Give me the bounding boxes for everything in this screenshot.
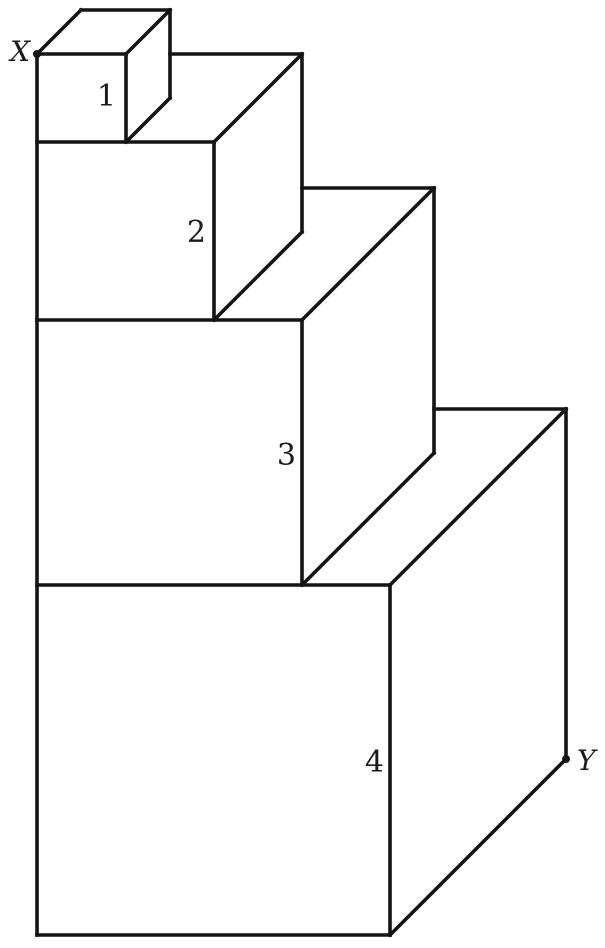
diagram-canvas: XY1234 [0,0,605,948]
cube1-top-left-depth-edge [37,10,81,54]
cube4-bottom-right-depth-edge [390,759,566,935]
label-cube-1: 1 [97,79,116,114]
cube4-top-right-depth-edge [390,409,566,585]
cube1-bottom-right-depth-edge [126,98,170,142]
cube3-bottom-right-depth-edge [302,453,434,585]
cube2-top-right-depth-edge [214,54,302,142]
cube1-top-right-depth-edge [126,10,170,54]
point-x-marker [33,50,41,58]
stacked-cubes-figure: XY1234 [0,0,605,948]
label-cube-3: 3 [277,438,296,473]
label-cube-2: 2 [187,215,206,250]
cube2-bottom-right-depth-edge [214,232,302,320]
point-y-marker [562,755,570,763]
label-point-y: Y [577,744,598,777]
label-cube-4: 4 [365,745,384,780]
cube3-top-right-depth-edge [302,188,434,320]
label-point-x: X [8,35,31,68]
